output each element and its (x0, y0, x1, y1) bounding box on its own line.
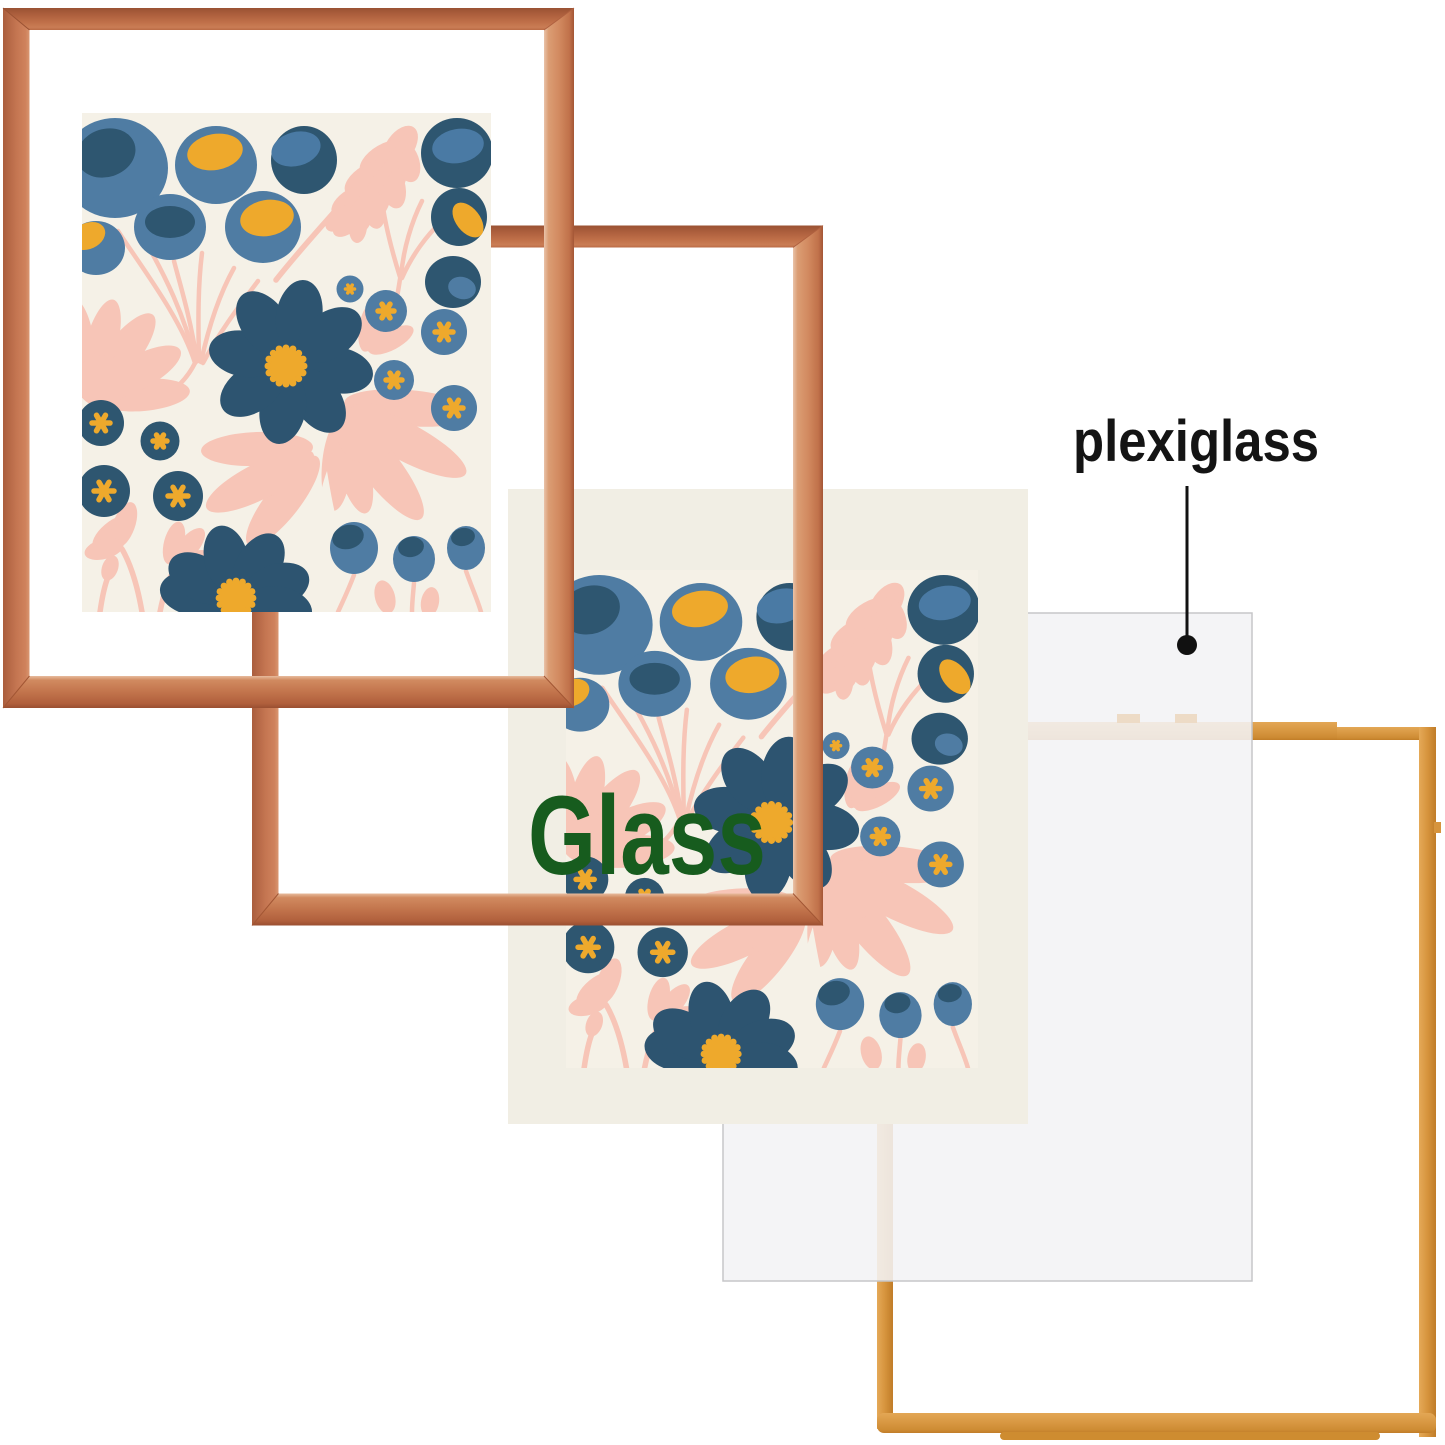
svg-text:Glass: Glass (528, 774, 766, 899)
svg-text:plexiglass: plexiglass (1073, 408, 1319, 474)
